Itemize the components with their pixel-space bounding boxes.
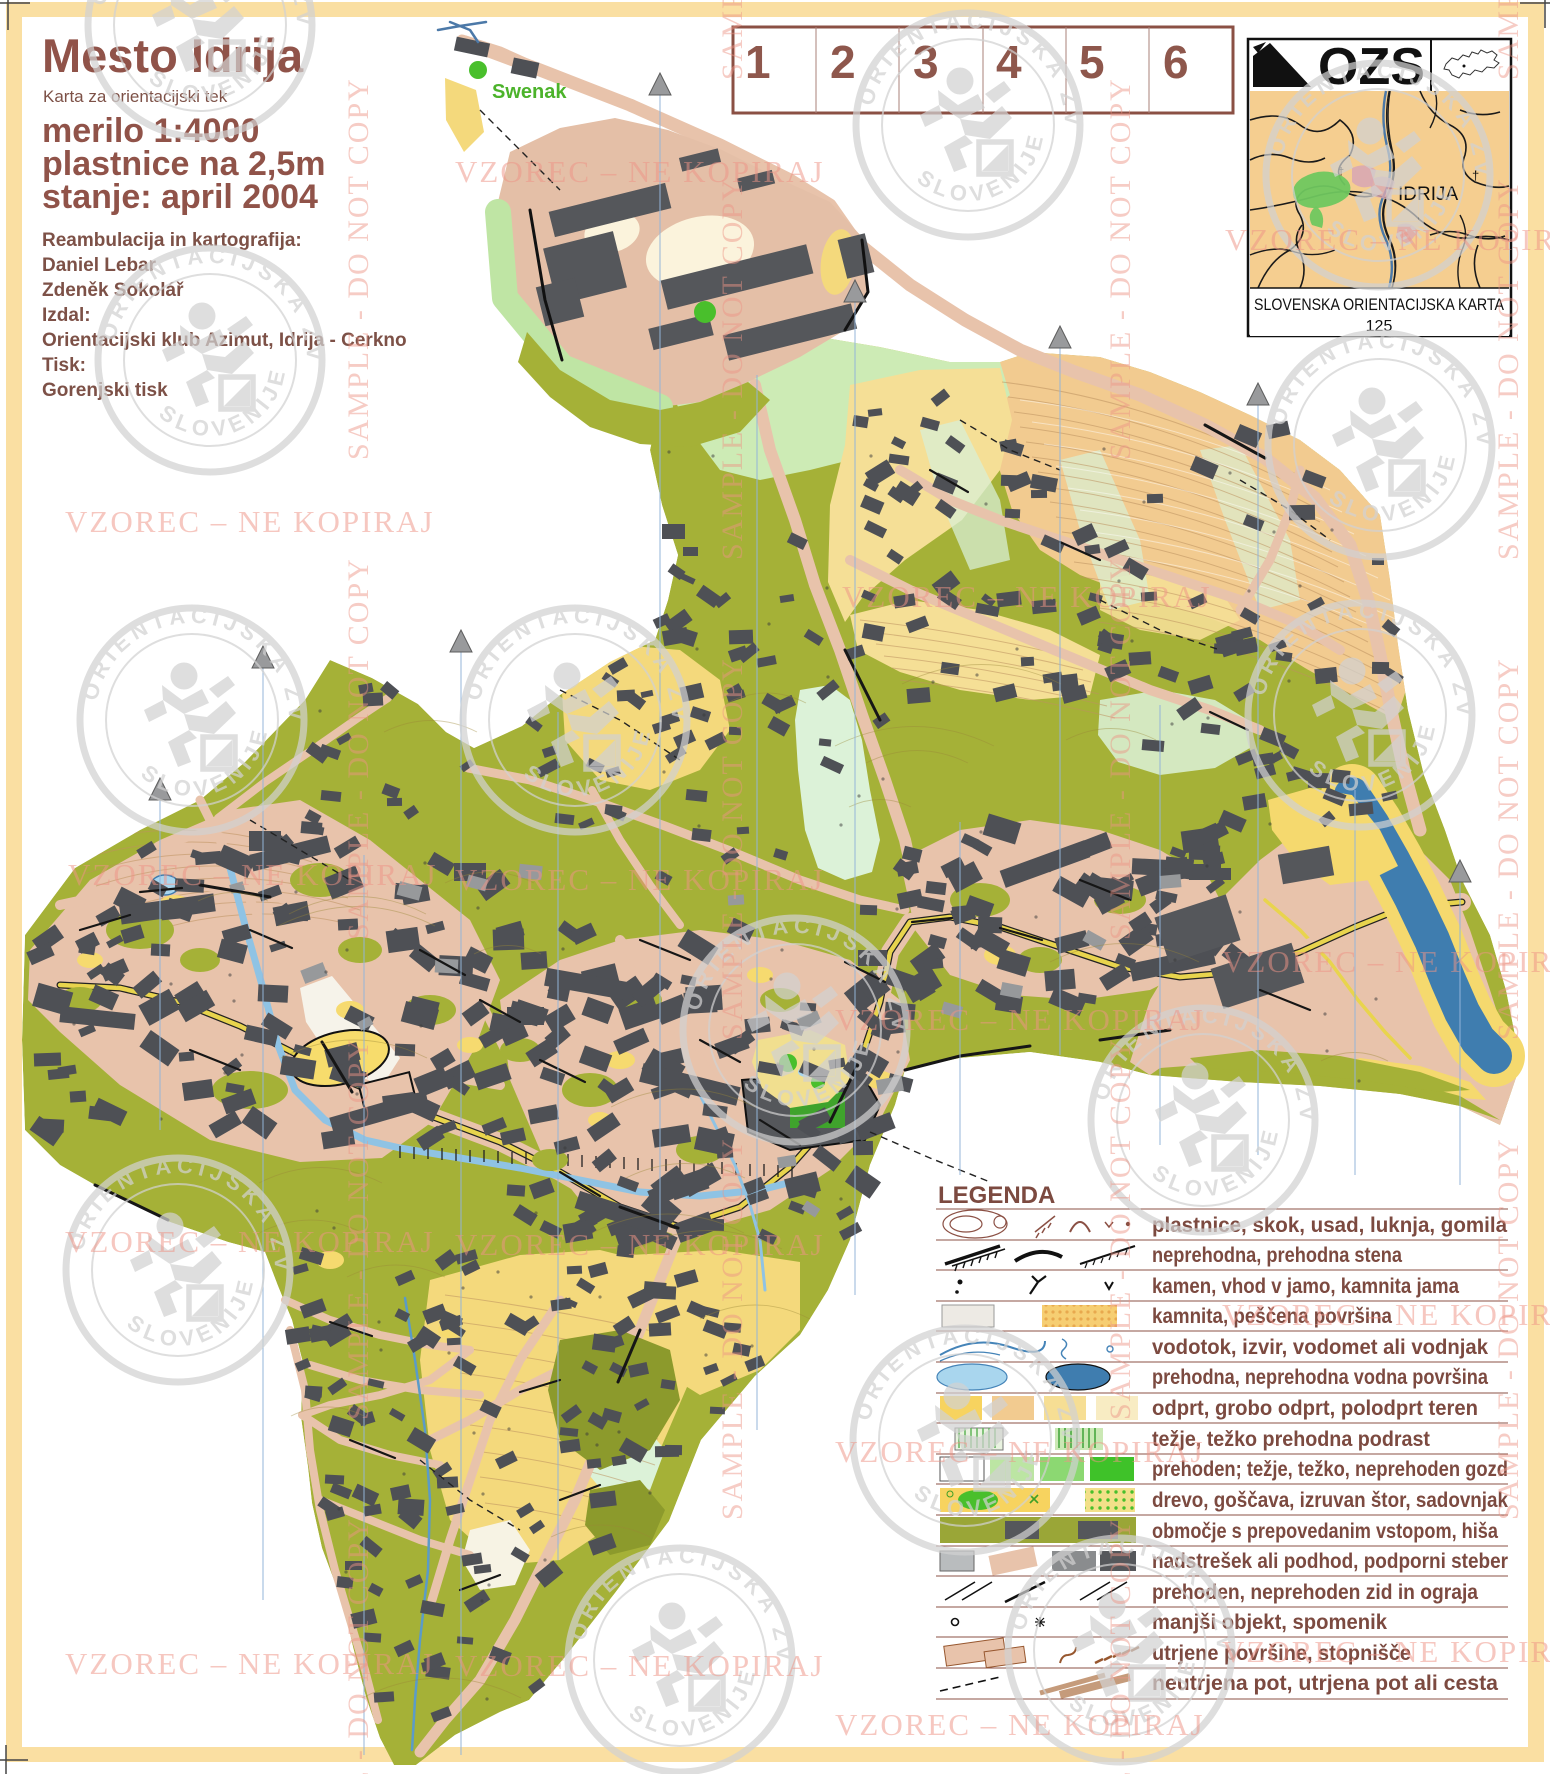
svg-text:SAMPLE - DO NOT COPY: SAMPLE - DO NOT COPY (1492, 1137, 1525, 1520)
svg-text:VZOREC – NE KOPIRAJ: VZOREC – NE KOPIRAJ (65, 1224, 435, 1259)
svg-text:VZOREC – NE KOPIRAJ: VZOREC – NE KOPIRAJ (835, 1707, 1205, 1742)
svg-text:SAMPLE - DO NOT COPY: SAMPLE - DO NOT COPY (342, 557, 375, 940)
svg-text:VZOREC – NE KOPIRAJ: VZOREC – NE KOPIRAJ (1222, 1634, 1550, 1669)
svg-text:LEGENDA: LEGENDA (938, 1182, 1055, 1209)
svg-text:VZOREC – NE KOPIRAJ: VZOREC – NE KOPIRAJ (835, 1002, 1205, 1037)
svg-text:SAMPLE - DO NOT COPY: SAMPLE - DO NOT COPY (1492, 657, 1525, 1040)
svg-text:6: 6 (1163, 36, 1189, 88)
svg-text:SAMPLE - DO NOT COPY: SAMPLE - DO NOT COPY (716, 1137, 749, 1520)
svg-text:nadstrešek ali podhod, podporn: nadstrešek ali podhod, podporni steber (1152, 1550, 1508, 1573)
svg-text:VZOREC – NE KOPIRAJ: VZOREC – NE KOPIRAJ (65, 1646, 435, 1681)
svg-text:Izdal:: Izdal: (42, 305, 91, 326)
svg-text:območje s prepovedanim vstopom: območje s prepovedanim vstopom, hiša (1152, 1520, 1498, 1543)
svg-text:Tisk:: Tisk: (42, 355, 86, 376)
svg-text:SAMPLE - DO NOT COPY: SAMPLE - DO NOT COPY (342, 1517, 375, 1774)
svg-text:SLOVENSKA ORIENTACIJSKA KARTA: SLOVENSKA ORIENTACIJSKA KARTA (1254, 296, 1504, 314)
svg-text:VZOREC – NE KOPIRAJ: VZOREC – NE KOPIRAJ (455, 862, 825, 897)
svg-text:Reambulacija in kartografija:: Reambulacija in kartografija: (42, 230, 302, 251)
svg-text:neprehodna, prehodna stena: neprehodna, prehodna stena (1152, 1244, 1402, 1267)
svg-text:VZOREC – NE KOPIRAJ: VZOREC – NE KOPIRAJ (65, 504, 435, 539)
svg-text:SAMPLE - DO NOT COPY: SAMPLE - DO NOT COPY (342, 77, 375, 460)
svg-text:drevo, goščava, izruvan štor,: drevo, goščava, izruvan štor, sadovnjak (1152, 1489, 1508, 1512)
svg-text:2: 2 (830, 36, 856, 88)
svg-text:SAMPLE - DO NOT COPY: SAMPLE - DO NOT COPY (1104, 557, 1137, 940)
svg-text:manjši objekt, spomenik: manjši objekt, spomenik (1152, 1611, 1387, 1634)
svg-text:SAMPLE - DO NOT COPY: SAMPLE - DO NOT COPY (1104, 77, 1137, 460)
svg-text:prehodna, neprehodna vodna pov: prehodna, neprehodna vodna površina (1152, 1366, 1488, 1389)
svg-text:VZOREC – NE KOPIRAJ: VZOREC – NE KOPIRAJ (68, 857, 438, 892)
svg-text:SAMPLE - DO NOT COPY: SAMPLE - DO NOT COPY (716, 657, 749, 1040)
svg-text:VZOREC – NE KOPIRAJ: VZOREC – NE KOPIRAJ (455, 1648, 825, 1683)
svg-text:SAMPLE - DO NOT COPY: SAMPLE - DO NOT COPY (1104, 1037, 1137, 1420)
svg-text:VZOREC – NE KOPIRAJ: VZOREC – NE KOPIRAJ (455, 1227, 825, 1262)
svg-text:kamen, vhod v jamo, kamnita ja: kamen, vhod v jamo, kamnita jama (1152, 1275, 1459, 1298)
svg-text:VZOREC – NE KOPIRAJ: VZOREC – NE KOPIRAJ (835, 1434, 1205, 1469)
svg-text:SAMPLE - DO NOT COPY: SAMPLE - DO NOT COPY (1104, 1517, 1137, 1774)
svg-text:Swenak: Swenak (492, 81, 567, 103)
svg-text:SAMPLE - DO NOT COPY: SAMPLE - DO NOT COPY (716, 177, 749, 560)
svg-text:odprt, grobo odprt, polodprt t: odprt, grobo odprt, polodprt teren (1152, 1397, 1478, 1420)
svg-text:stanje: april 2004: stanje: april 2004 (42, 178, 318, 216)
svg-text:5: 5 (1079, 36, 1105, 88)
svg-text:SAMPLE - DO NOT COPY: SAMPLE - DO NOT COPY (1492, 177, 1525, 560)
svg-text:SAMPLE - DO NOT COPY: SAMPLE - DO NOT COPY (716, 0, 749, 80)
svg-text:VZOREC – NE KOPIRAJ: VZOREC – NE KOPIRAJ (455, 154, 825, 189)
svg-text:SAMPLE - DO NOT COPY: SAMPLE - DO NOT COPY (1492, 0, 1525, 80)
svg-text:prehoden; težje, težko, nepreh: prehoden; težje, težko, neprehoden gozd (1152, 1458, 1508, 1481)
svg-text:SAMPLE - DO NOT COPY: SAMPLE - DO NOT COPY (342, 1037, 375, 1420)
svg-text:vodotok, izvir, vodomet ali vo: vodotok, izvir, vodomet ali vodnjak (1152, 1336, 1488, 1359)
svg-text:neutrjena pot, utrjena pot ali: neutrjena pot, utrjena pot ali cesta (1152, 1672, 1498, 1695)
svg-text:VZOREC – NE KOPIRAJ: VZOREC – NE KOPIRAJ (842, 579, 1212, 614)
